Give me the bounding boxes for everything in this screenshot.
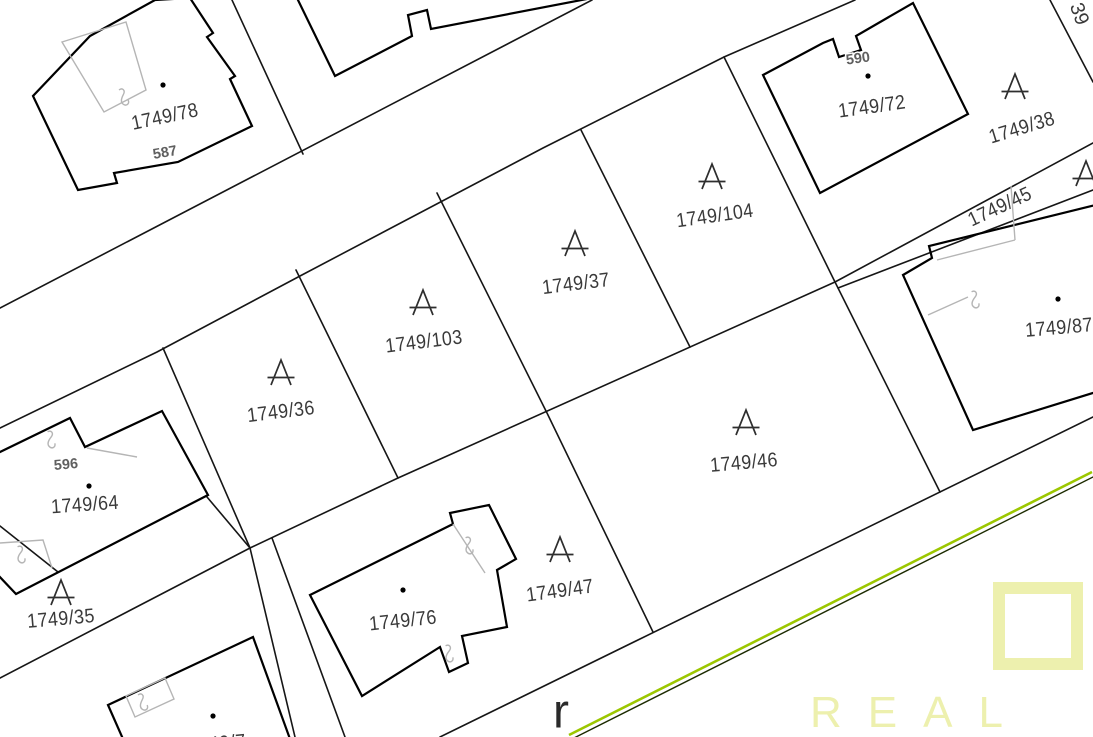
- boundary-line: [835, 282, 940, 492]
- map-labels: 1749/785871749/72590391749/381749/451749…: [26, 0, 1093, 737]
- parcel-number-1749-103: 1749/103: [384, 326, 464, 357]
- boundary-line: [0, 526, 58, 572]
- land-use-symbol-icon: [733, 410, 760, 435]
- building-number-590: 590: [845, 49, 871, 68]
- inner-wing-line: [453, 524, 485, 573]
- parcel-number-1749-87: 1749/87: [1024, 314, 1093, 342]
- parcel-number-1749-47: 1749/47: [525, 575, 595, 606]
- watermark-text: REAL: [810, 688, 1029, 737]
- parcel-number-1749-72: 1749/72: [837, 91, 907, 122]
- inner-wing-line: [126, 678, 174, 717]
- parcel-number-1749-37: 1749/37: [541, 269, 611, 299]
- wall-connector-icon: [15, 546, 26, 564]
- boundary-line: [724, 57, 835, 282]
- boundary-line: [250, 548, 295, 737]
- land-use-symbol-icon: [1073, 161, 1093, 186]
- land-use-symbol-icon: [547, 537, 574, 562]
- parcel-number-1749-64: 1749/64: [50, 492, 119, 519]
- boundary-line: [207, 497, 250, 548]
- inner-wing-line: [87, 448, 137, 457]
- building-definition-point: [1055, 296, 1060, 301]
- parcel-number-1749-46: 1749/46: [709, 449, 779, 477]
- parcel-number-1749-45: 1749/45: [965, 183, 1036, 232]
- building-outline-1749-78: [33, 0, 252, 190]
- building-definition-point: [160, 82, 165, 87]
- wall-connector-icon: [116, 88, 129, 106]
- wall-connector-icon: [969, 291, 980, 309]
- watermark-logo: REAL: [810, 588, 1077, 737]
- building-outline-bottom-left: [108, 637, 290, 737]
- building-outline-1749-76: [310, 505, 516, 696]
- parcel-number-1749-104: 1749/104: [675, 200, 755, 233]
- boundary-line: [272, 538, 345, 737]
- building-outline-top: [297, 0, 592, 76]
- road-edge-upper: [0, 0, 592, 308]
- inner-wing-line: [0, 540, 52, 568]
- building-number-596: 596: [53, 456, 79, 474]
- parcel-number-1749-35: 1749/35: [26, 605, 96, 633]
- parcel-number-1749-76: 1749/76: [368, 607, 438, 636]
- corner-parcel-number-39: 39: [1065, 0, 1093, 28]
- wall-connector-icon: [463, 537, 474, 555]
- watermark-square-icon: [999, 588, 1077, 664]
- land-use-symbol-icon: [48, 580, 75, 605]
- wall-connector-squiggles: [15, 88, 980, 711]
- building-number-587: 587: [152, 143, 179, 163]
- land-use-symbol-icon: [1002, 74, 1029, 99]
- road-edge-lower-right: [838, 190, 1093, 288]
- parcel-number-1749-78: 1749/78: [130, 99, 201, 135]
- land-use-symbol-icon: [699, 164, 726, 189]
- building-outline-1749-87: [903, 199, 1093, 430]
- wall-connector-icon: [135, 693, 148, 711]
- land-use-symbol-icon: [562, 231, 589, 256]
- wall-connector-icon: [45, 431, 56, 449]
- building-definition-point: [210, 713, 215, 718]
- boundary-line: [163, 348, 250, 548]
- building-definition-point: [400, 587, 405, 592]
- land-use-symbol-icon: [410, 290, 437, 315]
- cadastral-map-canvas: REAL: [0, 0, 1093, 737]
- building-definition-point: [865, 73, 870, 78]
- street-letter-r: r: [553, 686, 569, 737]
- parcel-number-1749-38: 1749/38: [986, 108, 1057, 149]
- building-definition-point: [86, 483, 91, 488]
- parcel-number-1749-7: 1749/7: [187, 731, 247, 737]
- land-use-symbol-icon: [268, 360, 295, 385]
- parcel-number-1749-36: 1749/36: [246, 397, 316, 427]
- boundary-line: [296, 270, 398, 478]
- cadastral-map: REAL: [0, 0, 1093, 737]
- inner-wing-line: [62, 22, 146, 112]
- boundary-line: [581, 130, 690, 347]
